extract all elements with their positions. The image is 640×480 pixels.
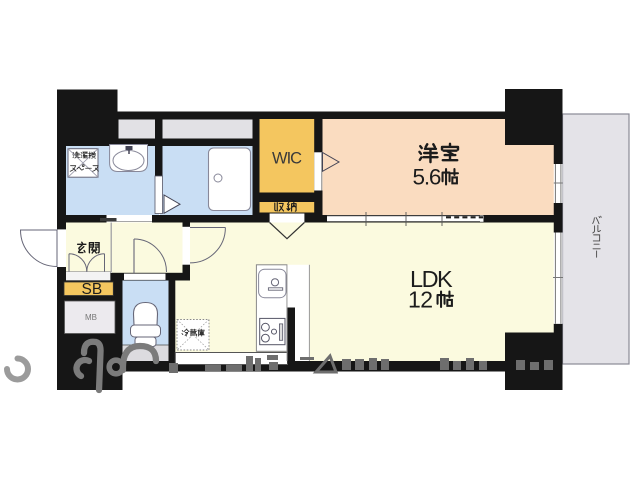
svg-text:12: 12 xyxy=(408,287,433,313)
svg-text:5.6: 5.6 xyxy=(413,165,441,190)
svg-text:MB: MB xyxy=(85,313,97,322)
svg-text:WIC: WIC xyxy=(272,150,302,168)
svg-text:SB: SB xyxy=(82,281,103,298)
